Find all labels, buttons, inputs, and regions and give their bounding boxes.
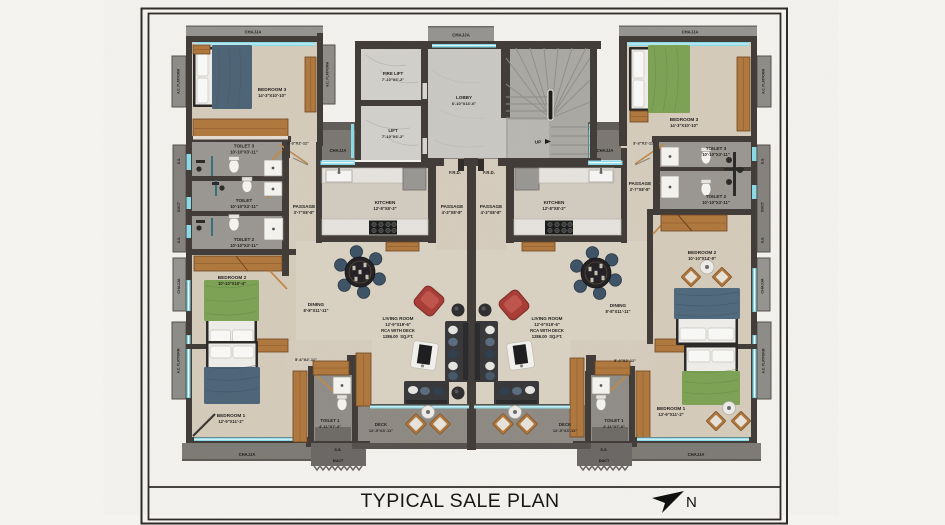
- svg-text:TYPICAL SALE PLAN: TYPICAL SALE PLAN: [361, 490, 560, 512]
- svg-text:N: N: [686, 494, 697, 511]
